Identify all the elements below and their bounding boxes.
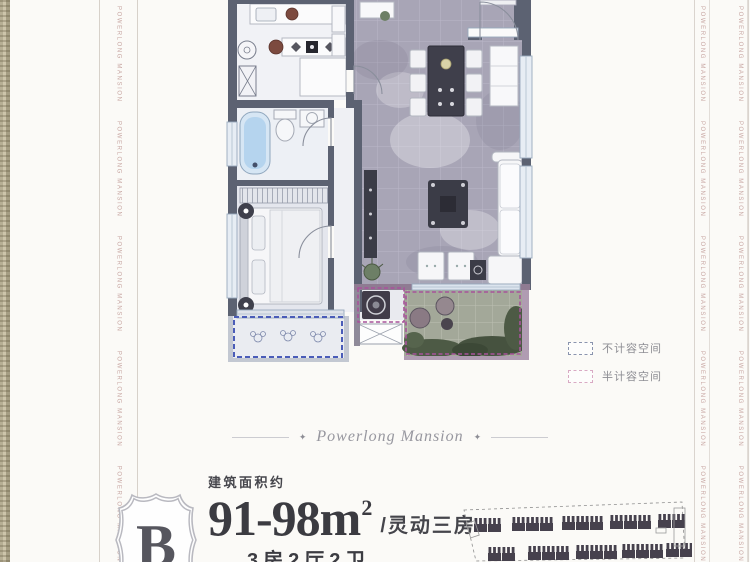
area-label: 建筑面积约 xyxy=(208,472,476,491)
divider-rule xyxy=(232,437,289,438)
area-exponent: 2 xyxy=(361,497,372,519)
building-row-bottom xyxy=(488,543,692,561)
legend-half-counted: 半计容空间 xyxy=(568,368,662,384)
brand-script-text: Powerlong Mansion xyxy=(316,428,463,446)
legend-non-counted: 不计容空间 xyxy=(568,340,662,356)
room-count-text: 3房2厅2卫 xyxy=(247,544,370,562)
badge-letter: B xyxy=(136,513,176,562)
foyer-cabinet xyxy=(490,46,518,106)
diamond-ornament-icon: ✦ xyxy=(299,432,307,443)
site-plan xyxy=(452,494,692,562)
legend: 不计容空间 半计容空间 xyxy=(568,340,662,384)
building-row-top xyxy=(474,514,685,532)
brand-divider: ✦ Powerlong Mansion ✦ xyxy=(232,428,548,446)
unit-badge: B xyxy=(112,486,200,562)
non-counted-swatch xyxy=(568,342,593,355)
area-line: 91-98m 2 /灵动三房 xyxy=(208,493,476,543)
area-value: 91-98m xyxy=(208,493,360,543)
diamond-ornament-icon: ✦ xyxy=(474,432,482,443)
utility-shaft xyxy=(238,41,256,96)
unit-info: 建筑面积约 91-98m 2 /灵动三房 xyxy=(208,472,476,543)
half-counted-swatch xyxy=(568,370,593,383)
divider-rule xyxy=(491,437,548,438)
half-counted-label: 半计容空间 xyxy=(602,368,662,384)
non-counted-label: 不计容空间 xyxy=(602,340,662,356)
brochure-page: POWERLONG MANSION POWERLONG MANSION POWE… xyxy=(0,0,750,562)
